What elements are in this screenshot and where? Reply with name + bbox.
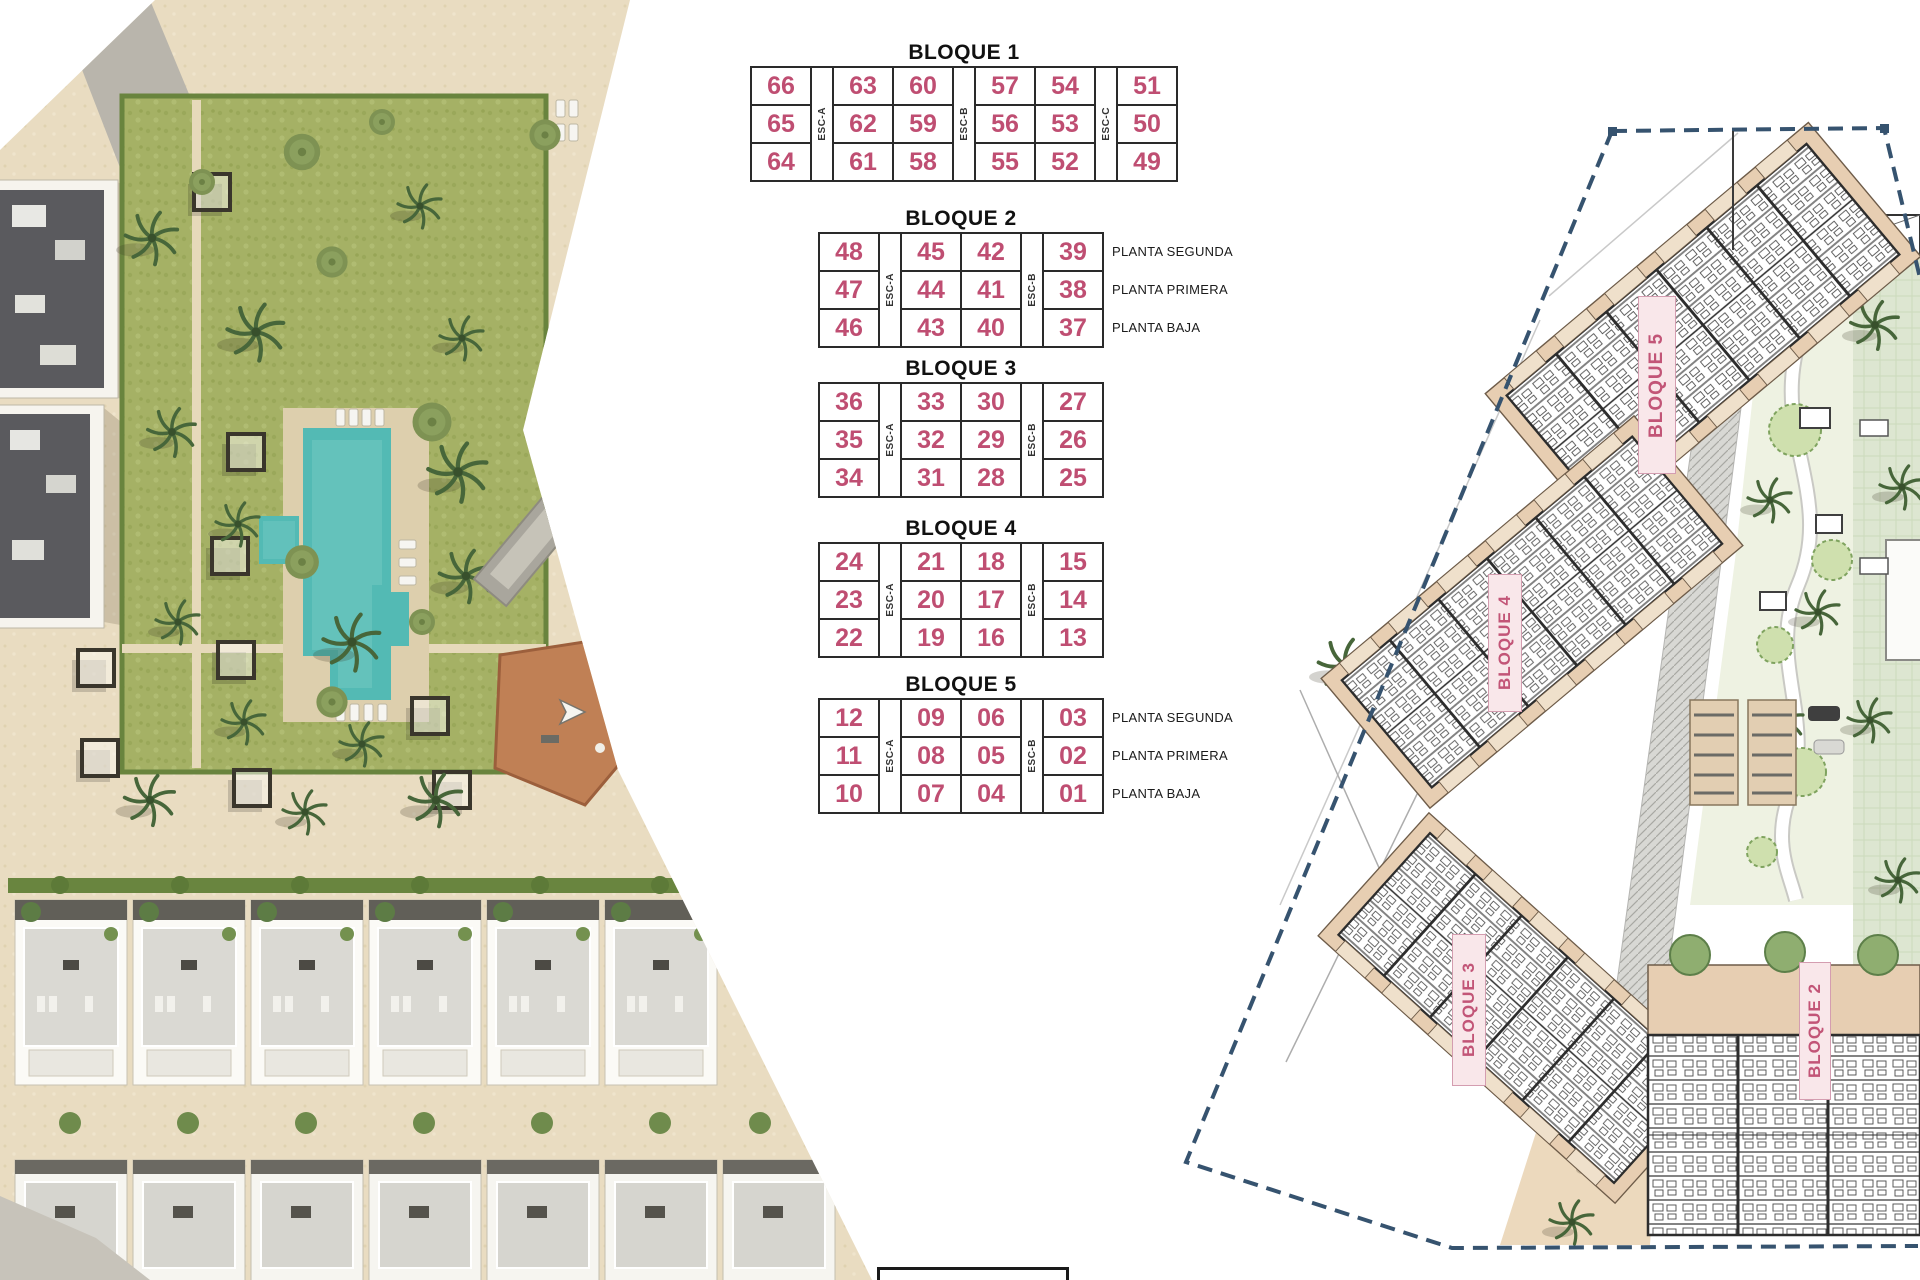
unit-cell: 44 bbox=[902, 272, 960, 308]
bloque-3-title: BLOQUE 3 bbox=[818, 356, 1104, 382]
unit-cell: 57 bbox=[976, 68, 1034, 104]
unit-cell: 50 bbox=[1118, 106, 1176, 142]
esc-divider: ESC-A bbox=[880, 700, 900, 812]
unit-cell: 31 bbox=[902, 460, 960, 496]
esc-divider: ESC-A bbox=[812, 68, 832, 180]
esc-divider: ESC-A bbox=[880, 384, 900, 496]
unit-cell: 52 bbox=[1036, 144, 1094, 180]
unit-cell: 62 bbox=[834, 106, 892, 142]
floor-label: PLANTA SEGUNDA bbox=[1112, 710, 1262, 726]
unit-cell: 32 bbox=[902, 422, 960, 458]
unit-cell: 12 bbox=[820, 700, 878, 736]
plan-label-bloque2: BLOQUE 2 bbox=[1799, 962, 1831, 1100]
esc-divider: ESC-B bbox=[1022, 700, 1042, 812]
unit-cell: 03 bbox=[1044, 700, 1102, 736]
unit-cell: 46 bbox=[820, 310, 878, 346]
unit-cell: 40 bbox=[962, 310, 1020, 346]
unit-cell: 25 bbox=[1044, 460, 1102, 496]
bloque-2-title: BLOQUE 2 bbox=[818, 206, 1104, 232]
bloque-2-table: BLOQUE 2 48 ESC-A 45 42 ESC-B 39 47 44 4… bbox=[818, 206, 1104, 348]
unit-cell: 17 bbox=[962, 582, 1020, 618]
unit-cell: 61 bbox=[834, 144, 892, 180]
unit-cell: 41 bbox=[962, 272, 1020, 308]
unit-cell: 13 bbox=[1044, 620, 1102, 656]
unit-cell: 63 bbox=[834, 68, 892, 104]
esc-divider: ESC-C bbox=[1096, 68, 1116, 180]
bloque-4-table: BLOQUE 4 24 ESC-A 21 18 ESC-B 15 23 20 1… bbox=[818, 516, 1104, 658]
unit-cell: 14 bbox=[1044, 582, 1102, 618]
unit-cell: 65 bbox=[752, 106, 810, 142]
unit-cell: 01 bbox=[1044, 776, 1102, 812]
unit-cell: 47 bbox=[820, 272, 878, 308]
unit-cell: 27 bbox=[1044, 384, 1102, 420]
unit-cell: 29 bbox=[962, 422, 1020, 458]
unit-cell: 30 bbox=[962, 384, 1020, 420]
unit-cell: 22 bbox=[820, 620, 878, 656]
unit-cell: 15 bbox=[1044, 544, 1102, 580]
bloque-4-title: BLOQUE 4 bbox=[818, 516, 1104, 542]
unit-cell: 36 bbox=[820, 384, 878, 420]
unit-cell: 42 bbox=[962, 234, 1020, 270]
unit-cell: 24 bbox=[820, 544, 878, 580]
unit-cell: 64 bbox=[752, 144, 810, 180]
unit-cell: 21 bbox=[902, 544, 960, 580]
unit-cell: 11 bbox=[820, 738, 878, 774]
unit-cell: 05 bbox=[962, 738, 1020, 774]
unit-cell: 54 bbox=[1036, 68, 1094, 104]
unit-cell: 48 bbox=[820, 234, 878, 270]
bloque-1-table: BLOQUE 1 66 ESC-A 63 60 ESC-B 57 54 ESC-… bbox=[750, 40, 1178, 182]
esc-divider: ESC-A bbox=[880, 234, 900, 346]
plan-pool bbox=[1886, 540, 1920, 660]
unit-cell: 19 bbox=[902, 620, 960, 656]
plan-label-bloque5: BLOQUE 5 bbox=[1638, 296, 1676, 474]
unit-cell: 53 bbox=[1036, 106, 1094, 142]
unit-cell: 58 bbox=[894, 144, 952, 180]
unit-cell: 49 bbox=[1118, 144, 1176, 180]
plan-label-bloque4: BLOQUE 4 bbox=[1488, 574, 1522, 712]
unit-cell: 37 bbox=[1044, 310, 1102, 346]
unit-cell: 43 bbox=[902, 310, 960, 346]
esc-divider: ESC-B bbox=[1022, 234, 1042, 346]
floor-label: PLANTA PRIMERA bbox=[1112, 282, 1262, 298]
esc-divider: ESC-B bbox=[954, 68, 974, 180]
unit-cell: 18 bbox=[962, 544, 1020, 580]
unit-cell: 45 bbox=[902, 234, 960, 270]
unit-cell: 55 bbox=[976, 144, 1034, 180]
esc-divider: ESC-B bbox=[1022, 544, 1042, 656]
floor-label: PLANTA SEGUNDA bbox=[1112, 244, 1262, 260]
unit-cell: 39 bbox=[1044, 234, 1102, 270]
unit-cell: 07 bbox=[902, 776, 960, 812]
bloque-3-table: BLOQUE 3 36 ESC-A 33 30 ESC-B 27 35 32 2… bbox=[818, 356, 1104, 498]
esc-divider: ESC-A bbox=[880, 544, 900, 656]
unit-cell: 10 bbox=[820, 776, 878, 812]
unit-cell: 16 bbox=[962, 620, 1020, 656]
unit-cell: 09 bbox=[902, 700, 960, 736]
unit-cell: 59 bbox=[894, 106, 952, 142]
unit-cell: 66 bbox=[752, 68, 810, 104]
unit-cell: 35 bbox=[820, 422, 878, 458]
unit-cell: 23 bbox=[820, 582, 878, 618]
unit-cell: 38 bbox=[1044, 272, 1102, 308]
legend-box bbox=[877, 1267, 1069, 1280]
esc-divider: ESC-B bbox=[1022, 384, 1042, 496]
unit-cell: 02 bbox=[1044, 738, 1102, 774]
bloque-5-table: BLOQUE 5 12 ESC-A 09 06 ESC-B 03 11 08 0… bbox=[818, 672, 1104, 814]
floor-label: PLANTA BAJA bbox=[1112, 786, 1262, 802]
unit-cell: 51 bbox=[1118, 68, 1176, 104]
unit-cell: 04 bbox=[962, 776, 1020, 812]
unit-cell: 56 bbox=[976, 106, 1034, 142]
bloque-1-title: BLOQUE 1 bbox=[750, 40, 1178, 66]
unit-cell: 33 bbox=[902, 384, 960, 420]
brochure-page: BLOQUE 1 66 ESC-A 63 60 ESC-B 57 54 ESC-… bbox=[0, 0, 1920, 1280]
floor-label: PLANTA PRIMERA bbox=[1112, 748, 1262, 764]
unit-cell: 60 bbox=[894, 68, 952, 104]
unit-cell: 34 bbox=[820, 460, 878, 496]
unit-cell: 20 bbox=[902, 582, 960, 618]
unit-cell: 06 bbox=[962, 700, 1020, 736]
bloque-5-title: BLOQUE 5 bbox=[818, 672, 1104, 698]
bloque-2-building bbox=[1648, 932, 1920, 1235]
plan-label-bloque3: BLOQUE 3 bbox=[1452, 934, 1486, 1086]
unit-cell: 08 bbox=[902, 738, 960, 774]
floor-label: PLANTA BAJA bbox=[1112, 320, 1262, 336]
unit-cell: 26 bbox=[1044, 422, 1102, 458]
unit-cell: 28 bbox=[962, 460, 1020, 496]
